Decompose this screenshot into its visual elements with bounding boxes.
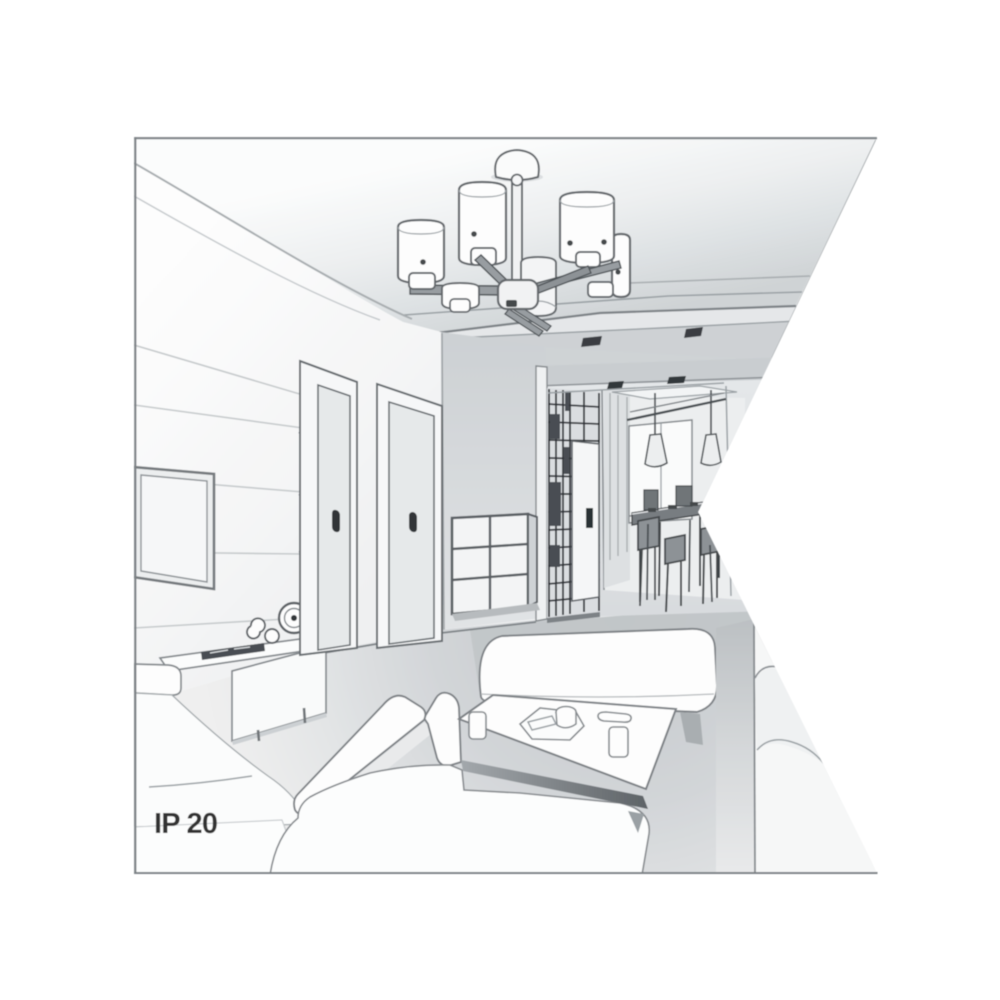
svg-text:IP 20: IP 20 [154,808,217,840]
